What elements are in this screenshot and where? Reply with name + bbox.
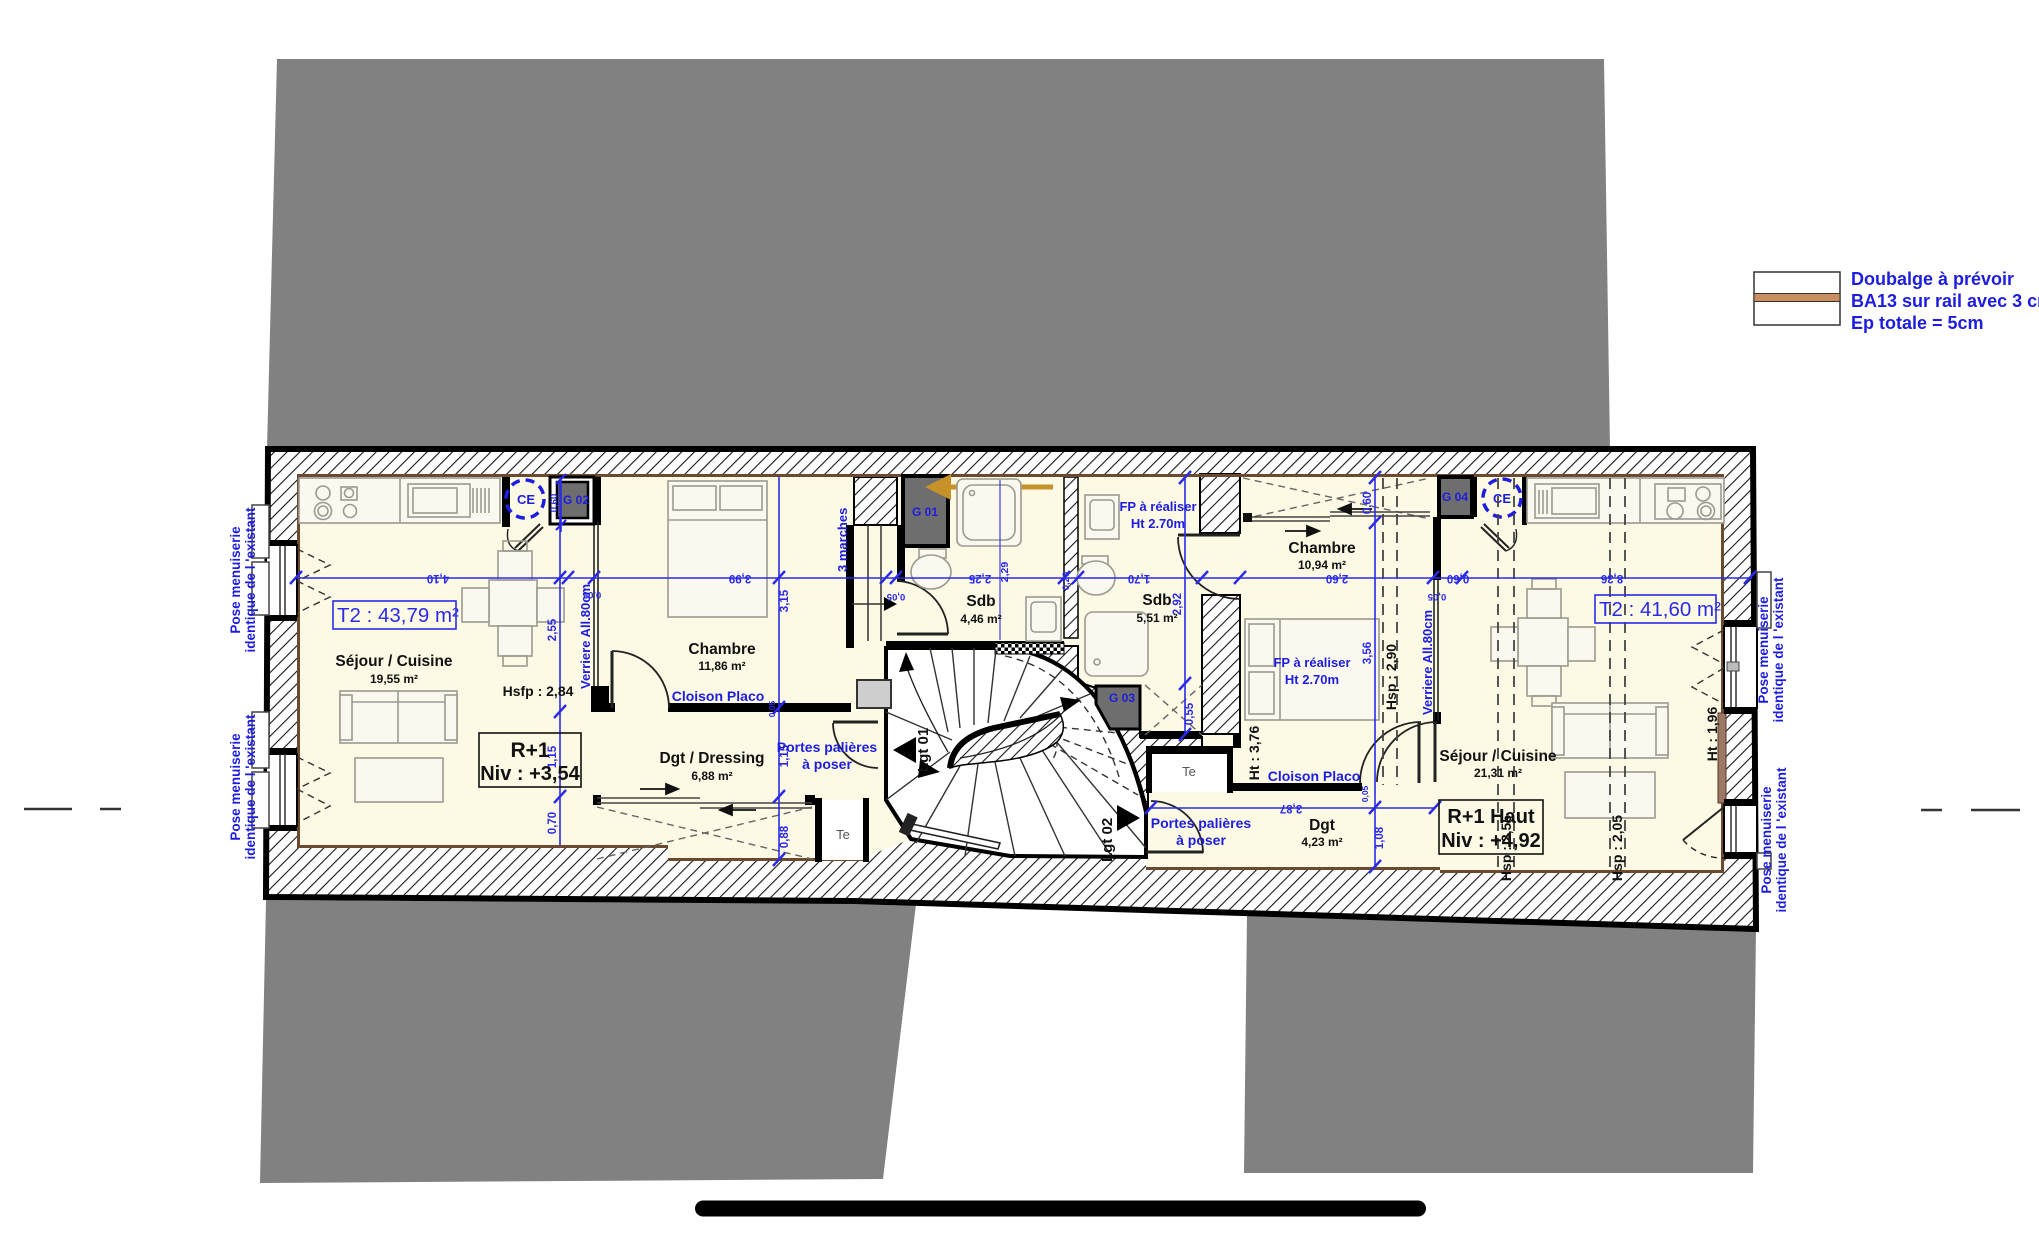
svg-text:Pose menuiserie: Pose menuiserie (1756, 596, 1771, 704)
svg-text:G 02: G 02 (563, 493, 589, 507)
svg-text:0,20: 0,20 (1061, 572, 1072, 591)
svg-text:identique de l 'existant: identique de l 'existant (243, 507, 258, 652)
svg-text:Hsp : 2,90: Hsp : 2,90 (1383, 644, 1399, 710)
svg-text:19,55 m²: 19,55 m² (370, 672, 418, 686)
svg-text:3,87: 3,87 (1280, 802, 1302, 814)
svg-text:4,23 m²: 4,23 m² (1301, 835, 1342, 849)
svg-text:Pose menuiserie: Pose menuiserie (228, 526, 243, 634)
svg-text:Niv : +3,54: Niv : +3,54 (480, 763, 580, 785)
svg-text:0,55: 0,55 (1184, 702, 1196, 725)
svg-text:à poser: à poser (802, 756, 852, 772)
svg-text:Sdb: Sdb (966, 593, 995, 610)
svg-text:3,99: 3,99 (729, 572, 751, 584)
svg-text:Verriere All.80cm: Verriere All.80cm (1420, 610, 1435, 715)
svg-text:Hsfp : 2,84: Hsfp : 2,84 (503, 683, 574, 699)
svg-text:10,94 m²: 10,94 m² (1298, 558, 1346, 572)
svg-text:Chambre: Chambre (1288, 540, 1356, 557)
svg-text:à poser: à poser (1176, 832, 1226, 848)
svg-text:0,05: 0,05 (1427, 591, 1446, 602)
svg-text:G 03: G 03 (1109, 691, 1135, 705)
svg-text:1,70: 1,70 (1128, 572, 1150, 584)
svg-text:Ht 2.70m: Ht 2.70m (1285, 672, 1339, 687)
svg-text:0,05: 0,05 (886, 591, 905, 602)
svg-text:Lgt 02: Lgt 02 (1099, 818, 1116, 862)
svg-text:5,51 m²: 5,51 m² (1136, 611, 1177, 625)
svg-text:FP à réaliser: FP à réaliser (1119, 499, 1196, 514)
svg-text:Doubalge à prévoir: Doubalge à prévoir (1851, 269, 2014, 289)
svg-text:1,08: 1,08 (1374, 826, 1386, 849)
svg-text:2,25: 2,25 (968, 572, 991, 584)
svg-text:FP à réaliser: FP à réaliser (1273, 655, 1350, 670)
svg-text:Ht : 1,96: Ht : 1,96 (1704, 707, 1720, 762)
svg-text:Hsp : 2,55: Hsp : 2,55 (1498, 815, 1514, 881)
svg-text:identique de l 'existant: identique de l 'existant (1771, 577, 1786, 722)
svg-text:R+1: R+1 (510, 739, 549, 762)
svg-text:CE: CE (1493, 491, 1511, 506)
svg-text:Séjour / Cuisine: Séjour / Cuisine (1439, 748, 1557, 765)
svg-text:2,60: 2,60 (1326, 572, 1348, 584)
svg-text:3,15: 3,15 (779, 589, 791, 612)
svg-text:0,05: 0,05 (1360, 785, 1370, 802)
svg-text:Verriere All.80cm: Verriere All.80cm (578, 584, 593, 689)
svg-text:0,70: 0,70 (547, 812, 559, 834)
svg-text:0,60: 0,60 (549, 494, 560, 513)
svg-text:Ep totale = 5cm: Ep totale = 5cm (1851, 313, 1984, 333)
svg-text:2,55: 2,55 (547, 618, 559, 641)
svg-text:Pose menuiserie: Pose menuiserie (228, 733, 243, 841)
svg-text:Séjour / Cuisine: Séjour / Cuisine (335, 653, 453, 670)
svg-text:6,88 m²: 6,88 m² (691, 769, 732, 783)
svg-text:T2 : 41,60 m²: T2 : 41,60 m² (1599, 598, 1721, 621)
svg-text:8,36: 8,36 (1601, 572, 1623, 584)
svg-text:4,46 m²: 4,46 m² (960, 612, 1001, 626)
svg-text:Te: Te (836, 827, 850, 842)
svg-text:21,31 m²: 21,31 m² (1474, 766, 1522, 780)
svg-text:0,60: 0,60 (1447, 572, 1469, 584)
svg-text:BA13 sur rail avec 3 cm: BA13 sur rail avec 3 cm (1851, 291, 2039, 311)
svg-text:Portes palières: Portes palières (1151, 815, 1252, 831)
svg-text:Dgt: Dgt (1309, 817, 1335, 834)
svg-text:CE: CE (517, 492, 535, 507)
svg-text:Te: Te (1182, 764, 1196, 779)
svg-text:Sdb: Sdb (1142, 592, 1171, 609)
svg-text:2,29: 2,29 (999, 562, 1011, 583)
svg-text:Ht : 3,76: Ht : 3,76 (1246, 726, 1262, 781)
svg-text:Cloison Placo: Cloison Placo (672, 688, 765, 704)
svg-text:11,86 m²: 11,86 m² (698, 659, 745, 673)
svg-text:identique de l 'existant: identique de l 'existant (243, 714, 258, 859)
svg-text:0,60: 0,60 (1362, 492, 1374, 514)
svg-text:G 04: G 04 (1442, 490, 1468, 504)
svg-text:Pose menuiserie: Pose menuiserie (1759, 786, 1774, 894)
svg-text:G 01: G 01 (912, 505, 938, 519)
svg-text:4,10: 4,10 (427, 572, 449, 584)
svg-text:R+1 Haut: R+1 Haut (1447, 806, 1535, 828)
svg-text:Dgt / Dressing: Dgt / Dressing (659, 750, 764, 767)
svg-text:0,88: 0,88 (779, 825, 791, 848)
svg-text:Niv : +4,92: Niv : +4,92 (1441, 830, 1541, 852)
svg-text:identique de l 'existant: identique de l 'existant (1774, 767, 1789, 912)
svg-text:3,56: 3,56 (1362, 642, 1374, 664)
svg-text:0,05: 0,05 (767, 700, 777, 717)
svg-text:Cloison Placo: Cloison Placo (1268, 768, 1361, 784)
svg-text:T2 : 43,79 m²: T2 : 43,79 m² (337, 604, 459, 627)
svg-text:Chambre: Chambre (688, 641, 756, 658)
svg-text:Ht 2.70m: Ht 2.70m (1131, 516, 1185, 531)
svg-text:Hsp : 2,05: Hsp : 2,05 (1609, 815, 1625, 881)
svg-text:Portes palières: Portes palières (777, 739, 878, 755)
svg-text:3 marches: 3 marches (835, 508, 850, 572)
svg-text:Lgt 01: Lgt 01 (915, 728, 932, 772)
